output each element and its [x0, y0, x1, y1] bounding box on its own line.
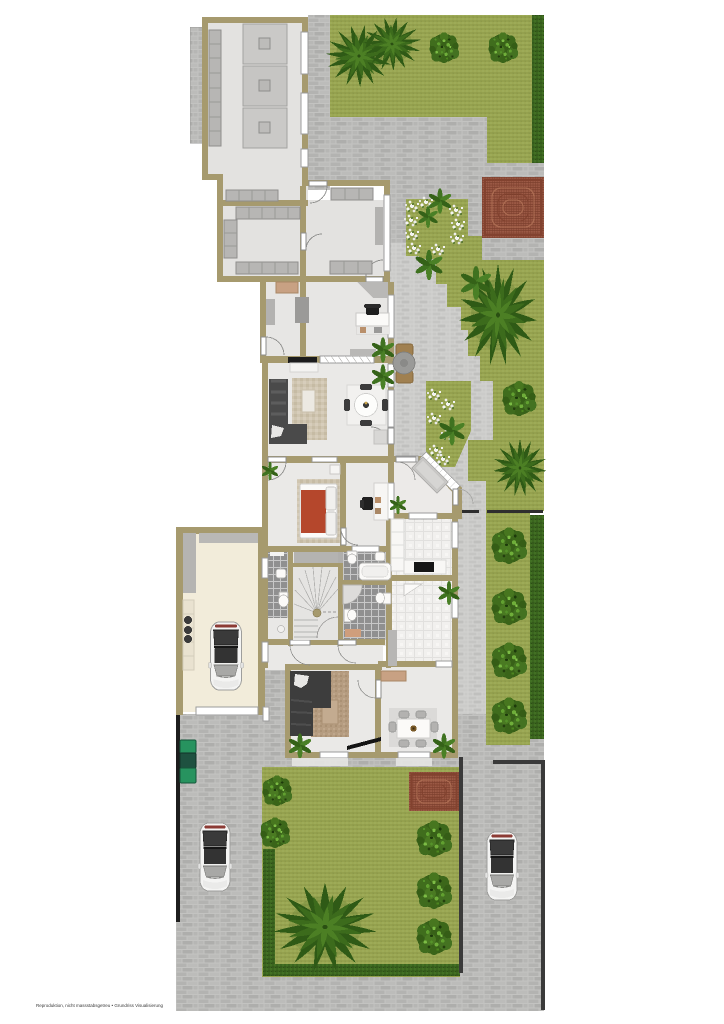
svg-text:Reproduktion, nicht massstabsg: Reproduktion, nicht massstabsgetreu • Gr… [36, 1003, 164, 1008]
